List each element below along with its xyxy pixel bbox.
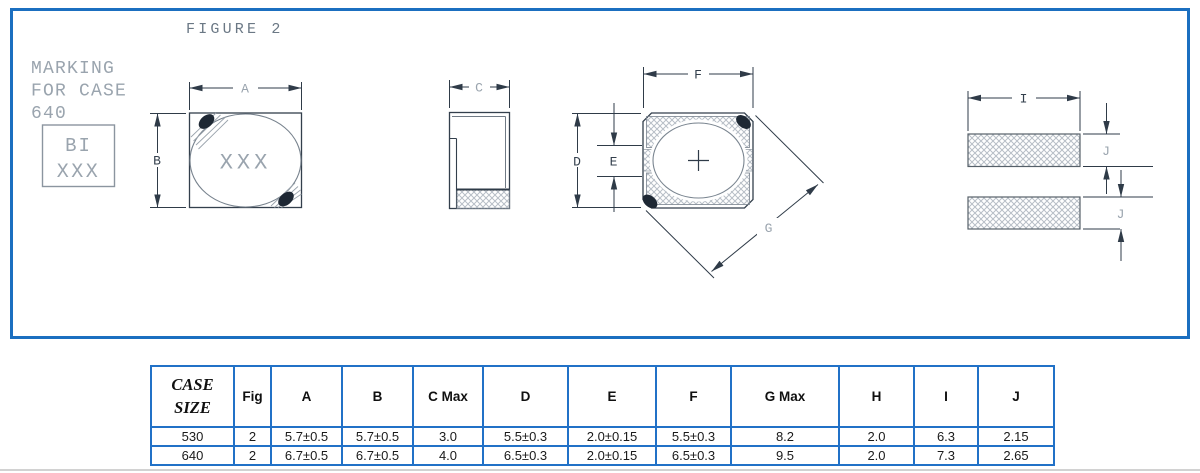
- col-header-case-size: CASE SIZE: [151, 366, 234, 427]
- marking-note-line2: FOR CASE: [31, 82, 127, 102]
- cell-fig: 2: [234, 427, 271, 446]
- marking-box: BI XXX: [43, 125, 115, 187]
- cell-d: 6.5±0.3: [483, 446, 568, 465]
- cell-g-max: 8.2: [731, 427, 839, 446]
- cell-b: 5.7±0.5: [342, 427, 413, 446]
- col-header-d: D: [483, 366, 568, 427]
- table-header-row: CASE SIZE Fig A B C Max D E F G Max H I …: [151, 366, 1054, 427]
- dim-label-G: G: [765, 221, 774, 236]
- land-pad-top: [968, 134, 1080, 167]
- cell-fig: 2: [234, 446, 271, 465]
- cell-a: 6.7±0.5: [271, 446, 342, 465]
- cell-h: 2.0: [839, 427, 914, 446]
- cell-case-size: 530: [151, 427, 234, 446]
- marking-note: MARKING FOR CASE 640: [31, 59, 127, 124]
- cell-i: 6.3: [914, 427, 978, 446]
- col-header-h: H: [839, 366, 914, 427]
- col-header-i: I: [914, 366, 978, 427]
- marking-note-line1: MARKING: [31, 59, 115, 79]
- col-header-e: E: [568, 366, 656, 427]
- cell-h: 2.0: [839, 446, 914, 465]
- cell-j: 2.65: [978, 446, 1054, 465]
- separator-line: [0, 469, 1200, 471]
- col-header-a: A: [271, 366, 342, 427]
- dim-label-J-bottom: J: [1117, 207, 1126, 222]
- dimensions-table: CASE SIZE Fig A B C Max D E F G Max H I …: [150, 365, 1055, 466]
- dim-label-D: D: [573, 155, 582, 170]
- col-header-f: F: [656, 366, 731, 427]
- table-row-530: 530 2 5.7±0.5 5.7±0.5 3.0 5.5±0.3 2.0±0.…: [151, 427, 1054, 446]
- col-header-j: J: [978, 366, 1054, 427]
- cell-g-max: 9.5: [731, 446, 839, 465]
- marking-box-text2: XXX: [57, 161, 101, 184]
- marking-note-line3: 640: [31, 104, 67, 124]
- bottom-view: F D E G: [569, 67, 824, 278]
- land-pad-bottom: [968, 197, 1080, 229]
- col-header-fig: Fig: [234, 366, 271, 427]
- dim-label-F: F: [694, 68, 703, 83]
- cell-j: 2.15: [978, 427, 1054, 446]
- col-header-c-max: C Max: [413, 366, 483, 427]
- cell-case-size: 640: [151, 446, 234, 465]
- cell-e: 2.0±0.15: [568, 427, 656, 446]
- cell-i: 7.3: [914, 446, 978, 465]
- cell-c-max: 3.0: [413, 427, 483, 446]
- drawing-frame-border: [12, 10, 1189, 338]
- top-view: A B XXX: [149, 81, 302, 209]
- dim-label-I: I: [1020, 92, 1029, 107]
- cell-e: 2.0±0.15: [568, 446, 656, 465]
- figure-title: FIGURE 2: [186, 21, 284, 38]
- dim-label-C: C: [475, 81, 484, 96]
- dim-label-E: E: [610, 155, 619, 170]
- cell-b: 6.7±0.5: [342, 446, 413, 465]
- side-view: C: [450, 80, 510, 209]
- cell-f: 6.5±0.3: [656, 446, 731, 465]
- dim-label-A: A: [241, 82, 250, 97]
- technical-drawing: FIGURE 2 MARKING FOR CASE 640 BI XXX A B…: [0, 0, 1200, 345]
- col-header-b: B: [342, 366, 413, 427]
- cell-f: 5.5±0.3: [656, 427, 731, 446]
- marking-box-text1: BI: [65, 135, 92, 157]
- cell-d: 5.5±0.3: [483, 427, 568, 446]
- table-row-640: 640 2 6.7±0.5 6.7±0.5 4.0 6.5±0.3 2.0±0.…: [151, 446, 1054, 465]
- dim-label-B: B: [153, 154, 162, 169]
- land-pattern: I J J: [968, 91, 1153, 261]
- side-terminal-hatch: [457, 190, 510, 209]
- part-marking-text: XXX: [220, 151, 272, 176]
- dim-label-J-top: J: [1102, 144, 1111, 159]
- cell-a: 5.7±0.5: [271, 427, 342, 446]
- col-header-g-max: G Max: [731, 366, 839, 427]
- cell-c-max: 4.0: [413, 446, 483, 465]
